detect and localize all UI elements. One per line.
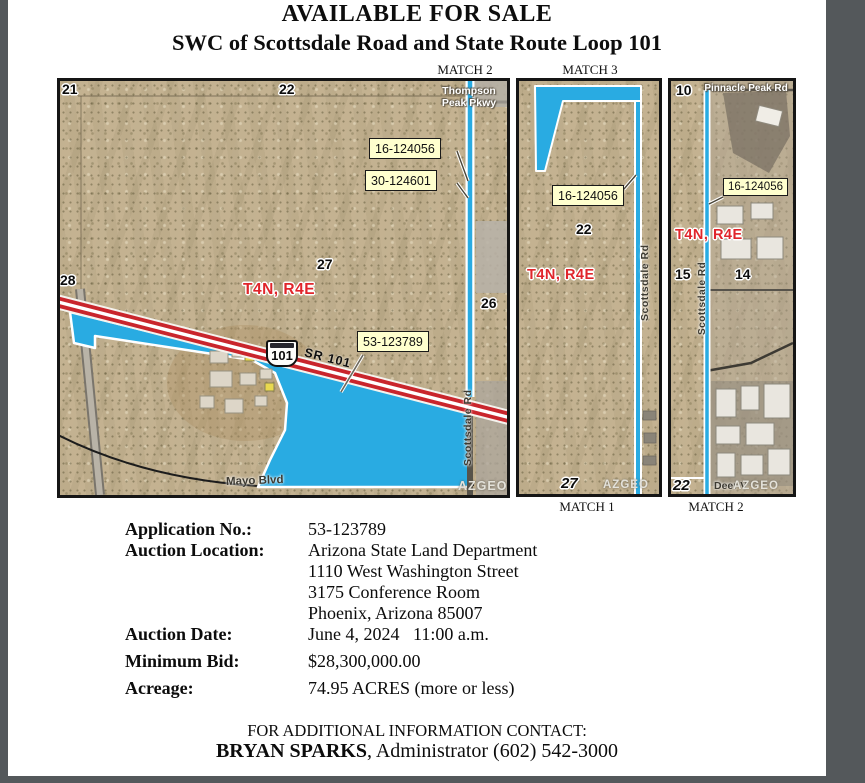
auction-location-line4: Phoenix, Arizona 85007 — [308, 603, 482, 624]
minimum-bid-label: Minimum Bid: — [125, 651, 240, 672]
map-graphics-north1 — [519, 81, 659, 494]
auction-location-line3: 3175 Conference Room — [308, 582, 480, 603]
map-panel-north1: 16-124056 22 T4N, R4E Scottsdale Rd 27 A… — [516, 78, 662, 497]
application-number-label: Application No.: — [125, 519, 252, 540]
azgeo-watermark-main: AZGEO — [458, 479, 507, 493]
parcel-callout-16-124056-right: 16-124056 — [723, 178, 788, 196]
flyer-subtitle: SWC of Scottsdale Road and State Route L… — [8, 30, 826, 56]
section-number-22: 22 — [279, 81, 295, 97]
parcel-callout-53-123789: 53-123789 — [357, 331, 429, 352]
route-101-shield-icon: 101 — [266, 340, 298, 367]
match-label-top-left: MATCH 2 — [430, 62, 500, 78]
section-number-15: 15 — [675, 266, 691, 282]
application-number-value: 53-123789 — [308, 519, 386, 540]
contact-phone: , Administrator (602) 542-3000 — [367, 740, 618, 762]
road-label-mayo-blvd: Mayo Blvd — [226, 474, 284, 488]
auction-date-value: June 4, 2024 11:00 a.m. — [308, 624, 489, 645]
road-label-thompson-line2: Peak Pkwy — [434, 97, 504, 109]
acreage-value: 74.95 ACRES (more or less) — [308, 678, 515, 699]
document-page: AVAILABLE FOR SALE SWC of Scottsdale Roa… — [8, 0, 826, 776]
contact-name: BRYAN SPARKS — [216, 740, 367, 762]
township-label-mid: T4N, R4E — [527, 267, 595, 283]
auction-date-label: Auction Date: — [125, 624, 232, 645]
township-label-main: T4N, R4E — [243, 281, 315, 299]
road-label-pinnacle-peak: Pinnacle Peak Rd — [701, 83, 791, 94]
section-number-10: 10 — [676, 82, 692, 98]
section-number-22-right: 22 — [673, 477, 690, 494]
road-label-thompson-peak-pkwy: Thompson Peak Pkwy — [434, 85, 504, 109]
section-number-26: 26 — [481, 295, 497, 311]
section-number-22-mid: 22 — [576, 221, 592, 237]
match-label-top-middle: MATCH 3 — [555, 62, 625, 78]
section-number-27-mid: 27 — [561, 475, 578, 492]
match-label-bottom-right: MATCH 2 — [681, 499, 751, 515]
township-label-right: T4N, R4E — [675, 227, 743, 243]
section-number-14: 14 — [735, 266, 751, 282]
auction-location-line1: Arizona State Land Department — [308, 540, 537, 561]
azgeo-watermark-mid: AZGEO — [603, 479, 649, 491]
azgeo-watermark-right: AZGEO — [733, 480, 779, 492]
map-panel-north2: 10 Pinnacle Peak Rd 16-124056 T4N, R4E 1… — [668, 78, 796, 497]
contact-heading: FOR ADDITIONAL INFORMATION CONTACT: — [8, 721, 826, 741]
flyer-title: AVAILABLE FOR SALE — [8, 1, 826, 28]
section-number-27: 27 — [317, 256, 333, 272]
match-label-bottom-middle: MATCH 1 — [552, 499, 622, 515]
section-number-28: 28 — [60, 272, 76, 288]
road-label-scottsdale-mid: Scottsdale Rd — [639, 229, 651, 321]
shield-number: 101 — [268, 348, 296, 363]
screenshot-canvas: AVAILABLE FOR SALE SWC of Scottsdale Roa… — [0, 0, 865, 783]
road-label-scottsdale-right: Scottsdale Rd — [697, 253, 708, 335]
parcel-callout-30-124601: 30-124601 — [365, 170, 437, 191]
parcel-callout-16-124056: 16-124056 — [369, 138, 441, 159]
auction-location-label: Auction Location: — [125, 540, 265, 561]
road-label-scottsdale-main: Scottsdale Rd — [462, 384, 474, 466]
road-label-thompson-line1: Thompson — [434, 85, 504, 97]
acreage-label: Acreage: — [125, 678, 194, 699]
minimum-bid-value: $28,300,000.00 — [308, 651, 421, 672]
contact-line: BRYAN SPARKS, Administrator (602) 542-30… — [8, 740, 826, 763]
section-number-21: 21 — [62, 81, 78, 97]
auction-location-line2: 1110 West Washington Street — [308, 561, 519, 582]
map-panel-main: 21 22 28 27 26 T4N, R4E Thompson Peak Pk… — [57, 78, 510, 498]
parcel-callout-16-124056-mid: 16-124056 — [552, 185, 624, 206]
map-graphics-north2 — [671, 81, 793, 494]
